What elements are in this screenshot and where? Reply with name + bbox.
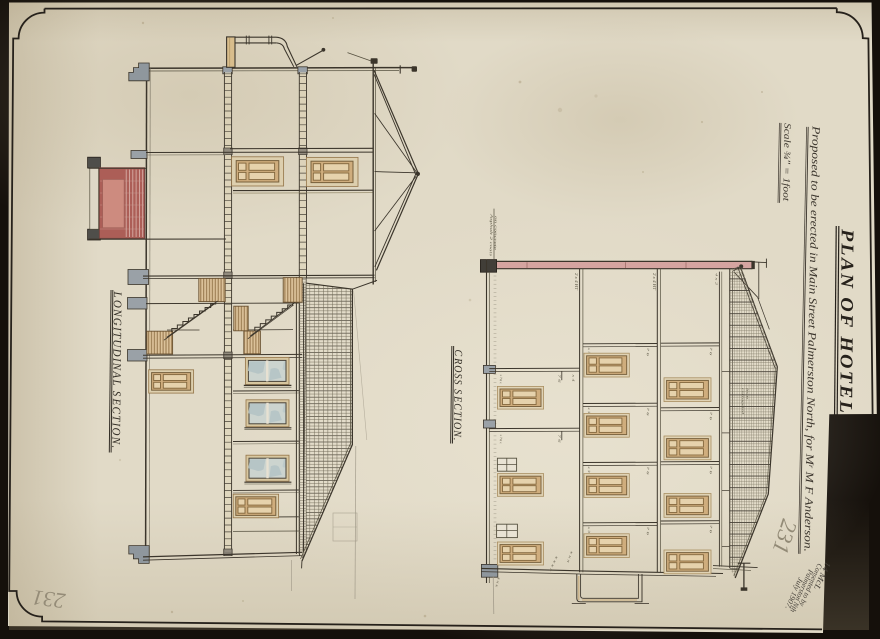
svg-text:7 6: 7 6	[709, 466, 713, 475]
svg-text:x 3: x 3	[587, 525, 591, 533]
svg-text:7 6: 7 6	[709, 347, 713, 356]
svg-text:7 6: 7 6	[557, 434, 561, 443]
svg-text:7 6: 7 6	[646, 407, 650, 416]
svg-text:4 x 2: 4 x 2	[715, 273, 719, 286]
svg-text:x 3: x 3	[587, 406, 591, 414]
svg-text:x 7 6 x: x 7 6 x	[499, 373, 503, 384]
svg-text:7 6: 7 6	[646, 466, 650, 475]
svg-text:2 x 4 HT: 2 x 4 HT	[574, 273, 578, 291]
svg-text:corrugated: corrugated	[741, 388, 745, 415]
svg-text:x 3: x 3	[587, 465, 591, 473]
svg-text:iron: iron	[745, 388, 749, 400]
svg-text:7 6: 7 6	[709, 412, 713, 421]
svg-text:231: 231	[31, 585, 67, 614]
svg-text:7 6: 7 6	[646, 348, 650, 357]
svg-text:on concrete: on concrete	[493, 216, 498, 251]
svg-text:PLAN OF HOTEL: PLAN OF HOTEL	[836, 228, 858, 415]
svg-text:7 6: 7 6	[709, 525, 713, 534]
svg-text:x 7 6 x: x 7 6 x	[499, 433, 503, 444]
svg-text:x 4: x 4	[571, 373, 575, 383]
svg-text:2 x 4 HT: 2 x 4 HT	[652, 273, 656, 291]
svg-text:7 6: 7 6	[557, 374, 561, 383]
svg-text:7 6: 7 6	[646, 527, 650, 536]
svg-text:Scale ¾″ = 1foot: Scale ¾″ = 1foot	[780, 123, 792, 202]
svg-text:Asphalt 2 coats: Asphalt 2 coats	[489, 212, 494, 257]
